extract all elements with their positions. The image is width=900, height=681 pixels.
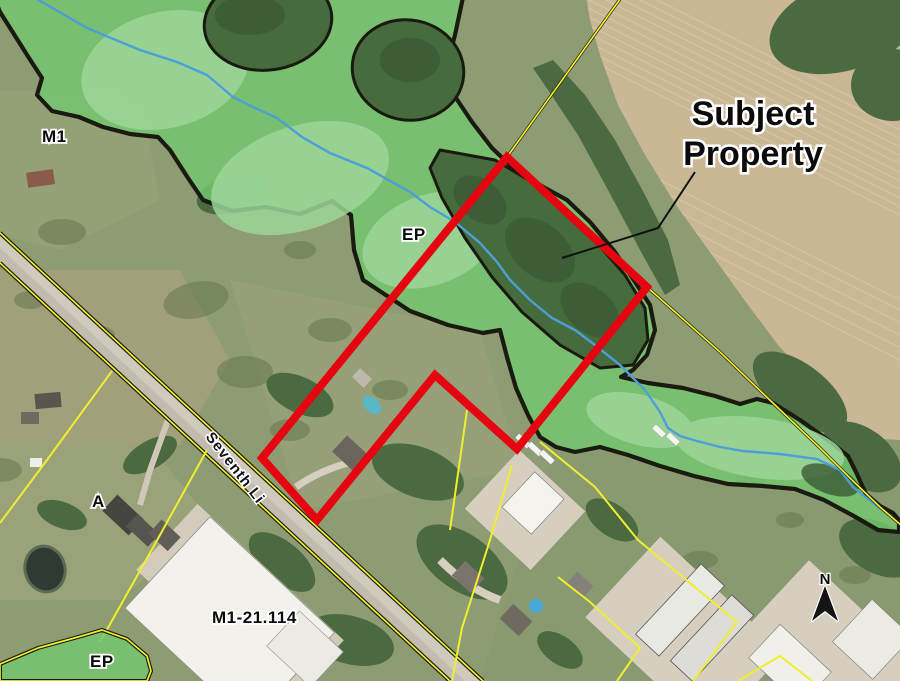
house (34, 392, 61, 409)
aerial-map-canvas: Subject Property M1 EP A M1-21.114 EP Se… (0, 0, 900, 681)
pool (529, 599, 543, 613)
zone-label-a: A (92, 492, 105, 511)
zone-label-ep: EP (402, 225, 426, 244)
zone-label-m1-21-114: M1-21.114 (212, 608, 297, 627)
subject-property-label-line1: Subject (692, 95, 815, 133)
subject-property-label-line2: Property (683, 135, 823, 173)
zone-label-ep-small: EP (90, 652, 114, 671)
zone-label-m1: M1 (42, 127, 67, 146)
house (21, 412, 39, 424)
zoning-map[interactable]: Subject Property M1 EP A M1-21.114 EP Se… (0, 0, 900, 681)
shed (30, 458, 42, 467)
